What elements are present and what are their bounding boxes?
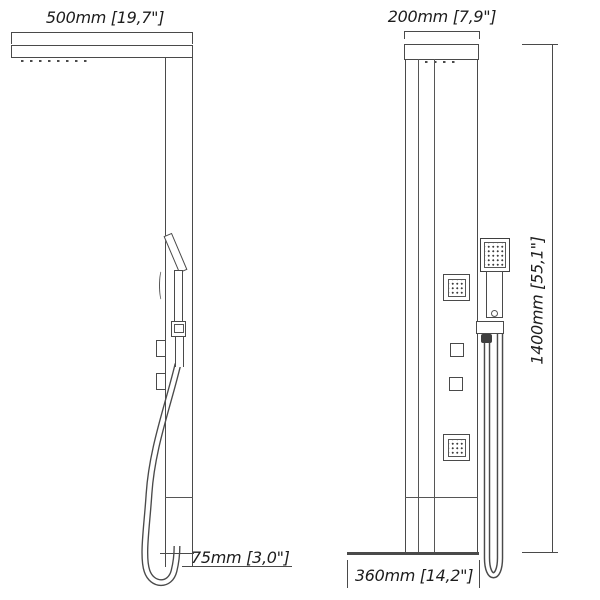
dim-360-tick-left — [347, 560, 348, 588]
technical-drawing-canvas: 500mm [19,7"] 75mm [3,0"] 200mm [7,9"] — [0, 0, 600, 600]
dim-360-tick-right — [479, 560, 480, 588]
panel-face-line-1 — [418, 59, 419, 553]
control-knob-front-2 — [449, 377, 463, 391]
panel-face-line-2 — [434, 59, 435, 553]
control-knob-front-1 — [450, 343, 464, 357]
hand-shower-handle-notch-icon — [491, 310, 498, 317]
base-bottom-line — [347, 552, 479, 555]
panel-top-cap-front — [404, 44, 479, 60]
hand-shower-head-front-face — [484, 242, 506, 268]
dim-1400-tick-top — [522, 44, 558, 45]
dim-1400-line — [552, 44, 553, 553]
body-jet-2-face — [448, 439, 466, 457]
panel-face-front — [405, 59, 478, 553]
body-jet-1-face — [448, 279, 466, 297]
dim-1400-label: 1400mm [55,1"] — [528, 235, 547, 367]
panel-base-top-line — [405, 497, 478, 498]
hose-front-icon — [0, 0, 600, 600]
hand-shower-bracket-front — [476, 321, 504, 334]
hose-connector-nut-icon — [481, 334, 492, 343]
dim-1400-tick-bottom — [522, 552, 558, 553]
dim-360-label: 360mm [14,2"] — [352, 566, 476, 585]
